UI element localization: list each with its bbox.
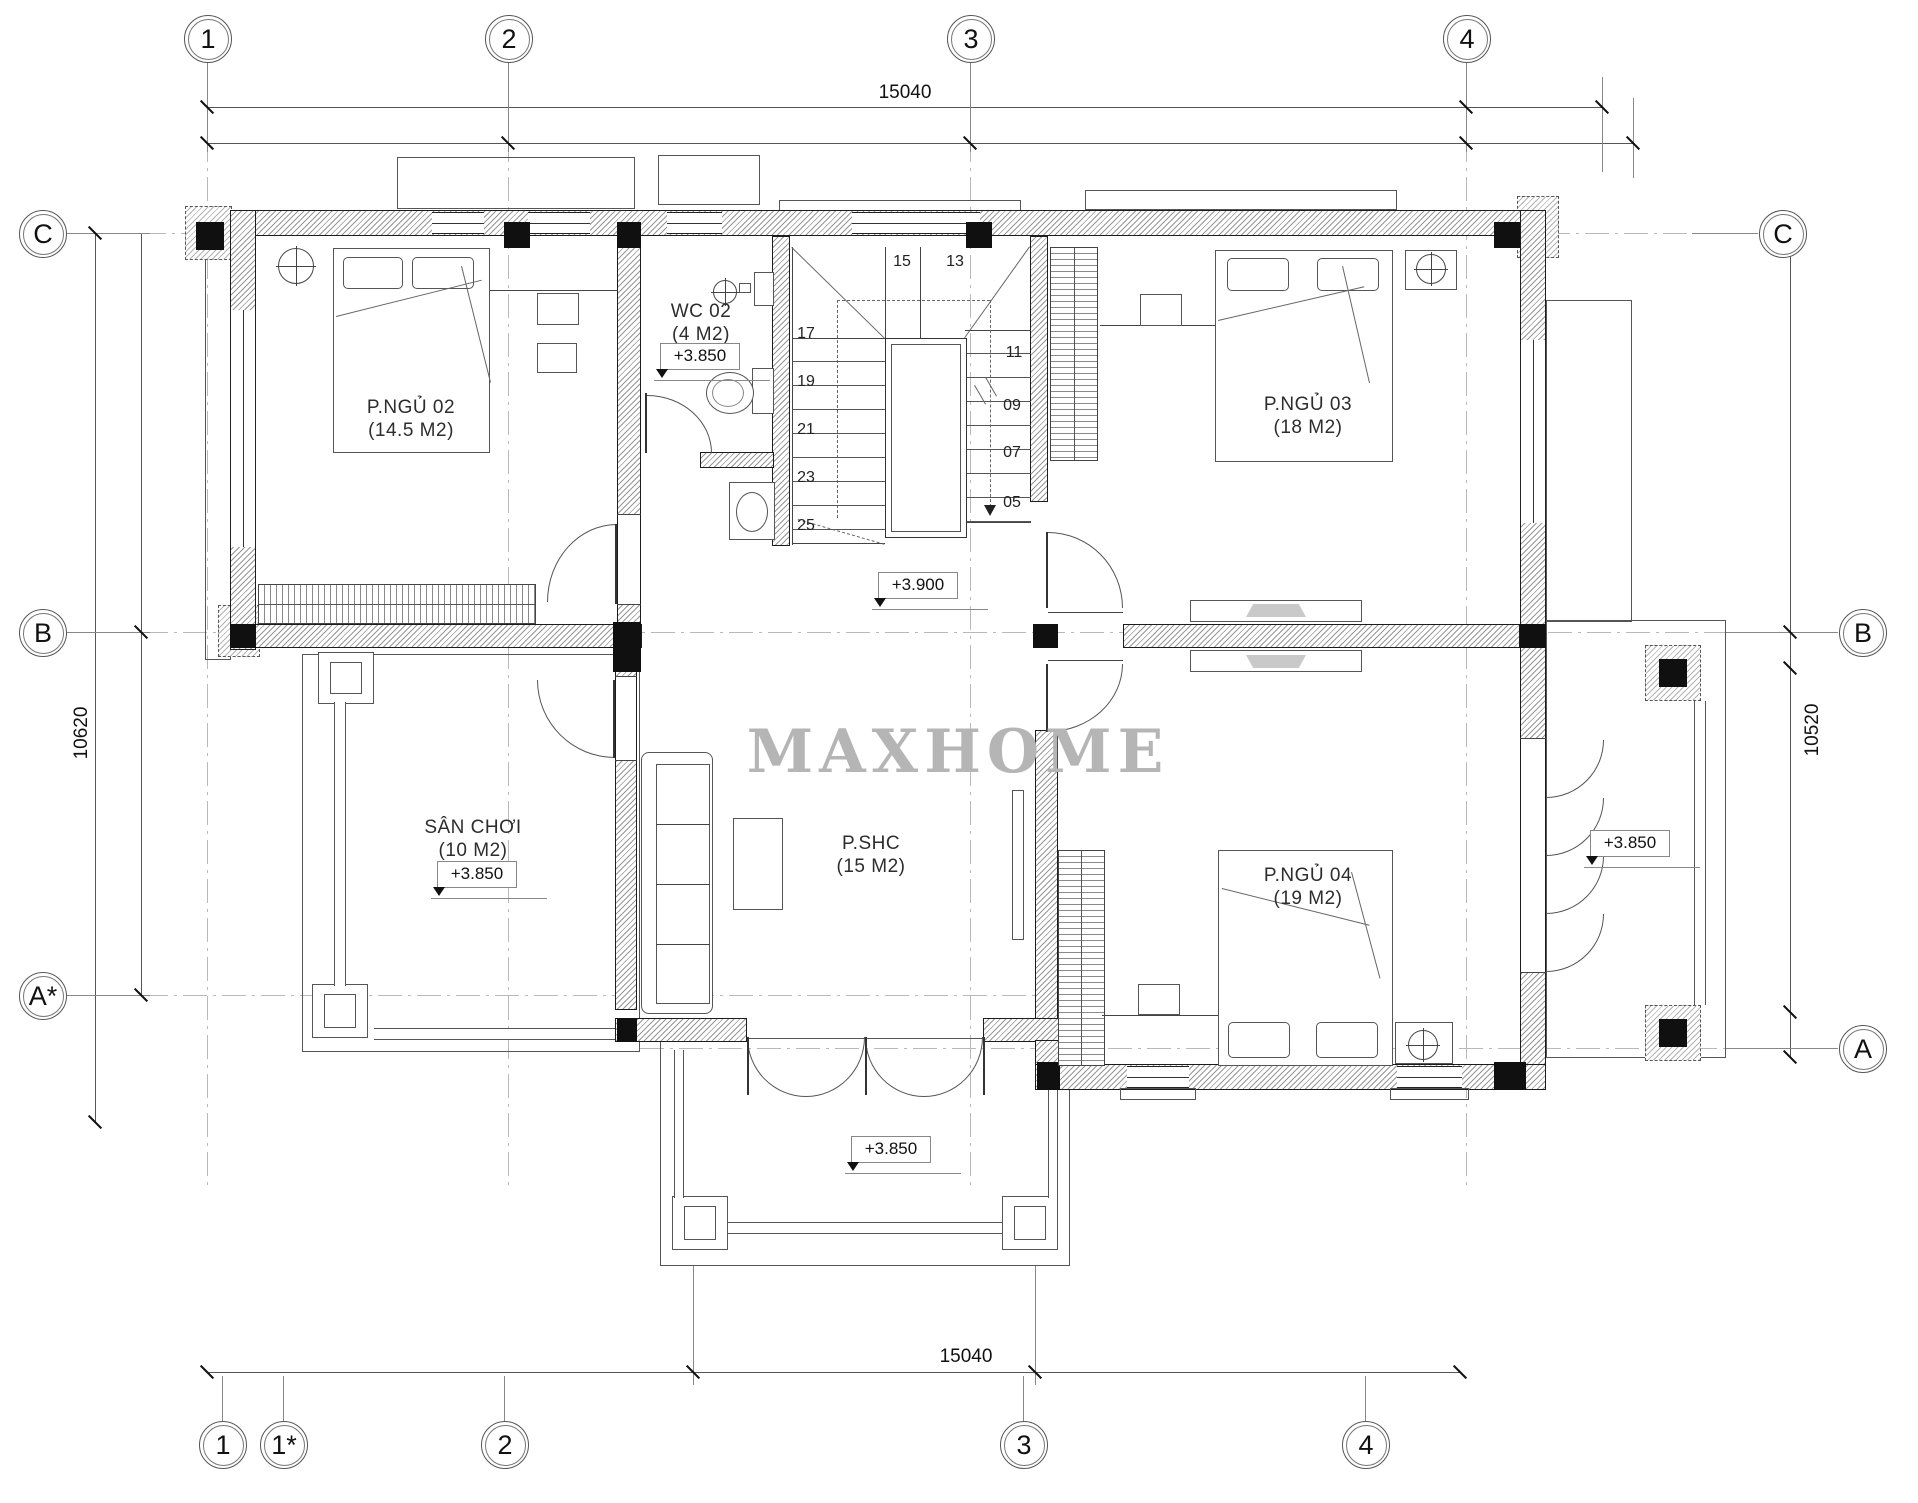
- coffee-table: [733, 818, 783, 910]
- grid-bubble-label: C: [1773, 219, 1793, 250]
- column: [1037, 1062, 1060, 1090]
- door-leaf: [615, 524, 617, 604]
- column: [1033, 624, 1058, 648]
- grid-bubble-bottom-1s: 1*: [260, 1421, 308, 1469]
- dim-line-top-2: [207, 143, 1633, 144]
- grid-bubble-bottom-3: 3: [1000, 1421, 1048, 1469]
- column: [613, 622, 641, 672]
- counter-line: [490, 290, 618, 291]
- grid-bubble-label: 3: [963, 24, 978, 55]
- column: [196, 222, 224, 250]
- terrace-post-inner: [324, 994, 356, 1028]
- grid-stub: [1726, 632, 1838, 633]
- grid-bubble-top-4: 4: [1443, 15, 1491, 63]
- room-name: P.NGỦ 02: [367, 396, 455, 419]
- door-leaf: [747, 1037, 749, 1095]
- wardrobe: [1050, 247, 1098, 461]
- canopy-outline: [1085, 190, 1397, 210]
- grid-bubble-bottom-2: 2: [481, 1421, 529, 1469]
- column: [1520, 624, 1546, 648]
- dim-line-bottom: [207, 1372, 1460, 1373]
- grid-bubble-label: 1*: [271, 1430, 297, 1461]
- stair-number: 05: [1003, 494, 1021, 512]
- stair-number: 11: [1006, 344, 1023, 362]
- level-tag-san-choi: +3.850: [437, 861, 517, 888]
- dim-text-top: 15040: [879, 82, 932, 104]
- dim-text-right: 10520: [1802, 704, 1824, 757]
- grid-stub: [1365, 1376, 1366, 1421]
- room-area: (19 M2): [1264, 887, 1352, 910]
- door-jamb: [1520, 972, 1546, 973]
- room-name: SÂN CHƠI: [424, 816, 521, 839]
- grid-bubble-top-3: 3: [947, 15, 995, 63]
- balcony-railing: [728, 1222, 1002, 1234]
- stair-tread: [965, 330, 1031, 331]
- dim-line-right: [1790, 233, 1791, 1057]
- level-tag-hall: +3.900: [878, 572, 958, 599]
- window: [432, 212, 484, 234]
- grid-bubble-left-Astar: A*: [19, 972, 67, 1020]
- room-label-san-choi: SÂN CHƠI (10 M2): [424, 816, 521, 862]
- ceiling-fan-icon: [1408, 1030, 1438, 1060]
- door-leaf: [865, 1037, 867, 1095]
- stair-number: 17: [797, 325, 815, 343]
- column: [966, 222, 992, 248]
- terrace-railing: [374, 1028, 615, 1040]
- stair-riser: [885, 247, 886, 338]
- window: [667, 212, 722, 234]
- radiator-grill: [258, 584, 536, 624]
- sofa-cushion-line: [656, 884, 710, 885]
- pillow: [1227, 258, 1289, 291]
- stair-tread: [792, 543, 885, 544]
- grid-stub: [1023, 1376, 1024, 1421]
- grid-stub: [222, 1376, 223, 1421]
- grid-bubble-left-B: B: [19, 609, 67, 657]
- terrace-railing: [334, 702, 346, 986]
- door-jamb: [615, 760, 637, 761]
- stair-walk-line: [837, 300, 990, 301]
- window: [230, 310, 256, 547]
- grid-bubble-label: 1: [200, 24, 215, 55]
- window-sill: [1120, 1088, 1196, 1100]
- grid-bubble-bottom-4: 4: [1342, 1421, 1390, 1469]
- column: [1659, 659, 1687, 687]
- door-arc-ngu02: [547, 524, 617, 602]
- column: [617, 1018, 637, 1042]
- nightstand: [1140, 294, 1182, 326]
- window: [1520, 340, 1546, 523]
- door-jamb: [617, 604, 641, 605]
- dim-line-left-1: [95, 233, 96, 1122]
- washbasin: [736, 492, 768, 532]
- terrace-post-inner: [330, 662, 362, 694]
- wardrobe-handle: [1246, 655, 1306, 668]
- extension-line: [1035, 1265, 1036, 1385]
- grid-stub: [66, 632, 150, 633]
- door-jamb: [1048, 612, 1123, 613]
- wall-B-right: [1123, 624, 1520, 648]
- grid-bubble-top-2: 2: [485, 15, 533, 63]
- dim-line-left-2: [141, 233, 142, 995]
- desk: [1138, 984, 1180, 1015]
- grid-bubble-label: C: [33, 219, 53, 250]
- floor-plan: 15040 15040 10620 10520 1 2 3 4 1 1* 2 3…: [0, 0, 1918, 1503]
- stair-winder-line: [964, 246, 1030, 338]
- grid-bubble-label: 4: [1358, 1430, 1373, 1461]
- desk: [537, 343, 577, 373]
- room-label-ngu04: P.NGỦ 04 (19 M2): [1264, 864, 1352, 910]
- grid-bubble-label: 3: [1016, 1430, 1031, 1461]
- door-jamb: [1048, 660, 1123, 661]
- door-leaf: [645, 393, 647, 453]
- canopy-outline: [397, 157, 635, 209]
- grid-bubble-label: 4: [1459, 24, 1474, 55]
- extension-line: [693, 1265, 694, 1385]
- column: [230, 624, 256, 648]
- column: [504, 222, 530, 248]
- door-opening: [616, 676, 636, 760]
- room-name: P.NGỦ 03: [1264, 393, 1352, 416]
- grid-stub: [508, 60, 509, 152]
- door-leaf: [613, 680, 615, 758]
- wardrobe-handle: [1246, 604, 1306, 617]
- room-area: (10 M2): [424, 839, 521, 862]
- sofa-cushion-line: [656, 824, 710, 825]
- pillow: [1316, 1022, 1378, 1058]
- sofa-cushion-line: [656, 944, 710, 945]
- grid-bubble-label: B: [34, 618, 52, 649]
- stair-number: 25: [797, 517, 815, 535]
- window-sill: [1390, 1088, 1469, 1100]
- room-area: (15 M2): [837, 855, 906, 878]
- grid-stub: [66, 995, 150, 996]
- wall-shc-bottom-r: [983, 1018, 1060, 1042]
- wall-B-left: [230, 624, 642, 648]
- window: [528, 212, 590, 234]
- column: [1494, 1062, 1526, 1090]
- grid-bubble-right-B: B: [1839, 609, 1887, 657]
- tv-panel: [1012, 790, 1024, 940]
- dim-text-bottom: 15040: [940, 1346, 993, 1368]
- door-leaf: [1046, 532, 1048, 608]
- level-tag-balcony-bottom: +3.850: [851, 1136, 931, 1163]
- grid-bubble-label: 1: [215, 1430, 230, 1461]
- room-name: P.NGỦ 04: [1264, 864, 1352, 887]
- stair-number: 21: [797, 421, 815, 439]
- nightstand: [537, 293, 579, 325]
- wardrobe: [1058, 850, 1105, 1066]
- wall-wc-bottom: [700, 452, 774, 468]
- toilet-tank: [752, 368, 774, 414]
- grid-stub: [1726, 1048, 1838, 1049]
- counter-line: [1102, 1015, 1218, 1016]
- grid-bubble-right-A: A: [1839, 1025, 1887, 1073]
- level-tag-balcony-right: +3.850: [1590, 830, 1670, 857]
- grid-stub: [283, 1376, 284, 1421]
- column: [617, 222, 641, 248]
- grid-bubble-label: A*: [29, 981, 58, 1012]
- pillow: [1228, 1022, 1290, 1058]
- stair-arrow: [984, 505, 996, 522]
- grid-stub: [504, 1376, 505, 1421]
- grid-bubble-label: B: [1854, 618, 1872, 649]
- shower-valve: [739, 283, 751, 293]
- balcony-post-inner: [1014, 1206, 1046, 1240]
- balcony-railing: [1694, 701, 1706, 1005]
- door-jamb: [617, 514, 641, 515]
- stair-walk-line: [990, 300, 991, 512]
- toilet-bowl-inner: [712, 379, 744, 407]
- door-arc-wc: [647, 395, 712, 453]
- maxhome-watermark: MAXHOME: [747, 717, 1170, 787]
- grid-bubble-right-C: C: [1759, 210, 1807, 258]
- door-arc-ngu03: [1048, 532, 1123, 608]
- stair-well-inner: [891, 344, 961, 532]
- grid-bubble-label: 2: [501, 24, 516, 55]
- window: [1127, 1066, 1189, 1088]
- balcony-railing: [674, 1050, 684, 1198]
- column: [1659, 1019, 1687, 1047]
- grid-bubble-label: 2: [497, 1430, 512, 1461]
- stair-number: 19: [797, 373, 815, 391]
- dim-text-left: 10620: [71, 707, 93, 760]
- stair-number: 09: [1003, 397, 1021, 415]
- grid-bubble-left-C: C: [19, 210, 67, 258]
- ledge-right: [1546, 300, 1632, 622]
- extension-line: [1602, 77, 1603, 172]
- window: [852, 212, 980, 234]
- ceiling-fan-icon: [1416, 254, 1446, 284]
- room-name: WC 02: [671, 300, 732, 323]
- wall-A-ngu04: [1035, 1064, 1546, 1090]
- dim-line-top-1: [207, 107, 1602, 108]
- stair-tread: [965, 522, 1031, 523]
- extension-line: [1633, 98, 1634, 178]
- grid-bubble-label: A: [1854, 1034, 1872, 1065]
- ceiling-fan-icon: [278, 248, 314, 284]
- room-label-wc02: WC 02 (4 M2): [671, 300, 732, 346]
- level-tag-wc: +3.850: [660, 343, 740, 370]
- grid-stub: [64, 233, 150, 234]
- window: [1397, 1066, 1462, 1088]
- grid-bubble-top-1: 1: [184, 15, 232, 63]
- room-name: P.SHC: [837, 832, 906, 855]
- stair-riser: [920, 247, 921, 338]
- shelf: [754, 272, 774, 306]
- room-label-pshc: P.SHC (15 M2): [837, 832, 906, 878]
- room-area: (18 M2): [1264, 416, 1352, 439]
- door-jamb: [615, 676, 637, 677]
- ledge-left: [205, 240, 231, 660]
- wall-stair-right: [1030, 236, 1048, 502]
- stair-number: 07: [1003, 444, 1021, 462]
- pillow: [1317, 258, 1379, 291]
- stair-number: 23: [797, 469, 815, 487]
- grid-bubble-bottom-1: 1: [199, 1421, 247, 1469]
- pillow: [343, 257, 403, 289]
- room-label-ngu03: P.NGỦ 03 (18 M2): [1264, 393, 1352, 439]
- door-leaf: [983, 1037, 985, 1095]
- grid-stub: [1692, 233, 1758, 234]
- balcony-post-inner: [684, 1206, 716, 1240]
- stair-number: 13: [946, 253, 964, 271]
- room-label-ngu02: P.NGỦ 02 (14.5 M2): [367, 396, 455, 442]
- canopy-outline: [658, 155, 760, 205]
- grid-stub: [970, 60, 971, 152]
- door-jamb: [1520, 738, 1546, 739]
- door-opening: [1521, 739, 1545, 972]
- stair-walk-line: [837, 300, 838, 518]
- door-opening: [618, 514, 640, 604]
- column: [1494, 222, 1520, 248]
- stair-number: 15: [893, 253, 911, 271]
- room-area: (14.5 M2): [367, 419, 455, 442]
